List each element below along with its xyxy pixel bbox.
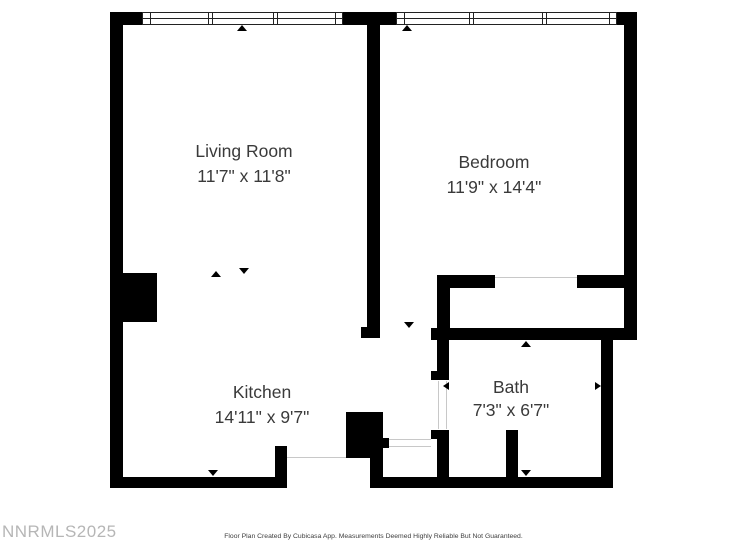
window-frame-line	[150, 13, 151, 24]
room-dimensions: 11'7" x 11'8"	[134, 164, 354, 189]
window-band-bedroom	[396, 12, 617, 25]
window-mullion	[473, 13, 474, 24]
wall-bath-bottom	[370, 477, 613, 488]
wall-divider-foot	[361, 327, 380, 338]
window-frame-line	[404, 13, 405, 24]
marker-triangle-closet-bottom	[521, 341, 531, 347]
wall-bath-left-lower-foot	[431, 430, 449, 439]
window-mullion	[212, 13, 213, 24]
wall-right-exterior	[624, 12, 637, 340]
footer-disclaimer: Floor Plan Created By Cubicasa App. Meas…	[0, 533, 747, 540]
wall-closet-bath-long	[431, 328, 637, 340]
wall-below-entry-block	[370, 458, 383, 477]
wall-kitchen-bottom	[110, 477, 287, 488]
window-glass-line	[397, 18, 616, 19]
window-frame-line	[335, 13, 336, 24]
marker-triangle-openplan-right	[239, 268, 249, 274]
marker-triangle-bath-bottom	[521, 470, 531, 476]
room-dimensions: 14'11" x 9'7"	[152, 405, 372, 430]
room-label-bedroom: Bedroom 11'9" x 14'4"	[384, 150, 604, 200]
marker-triangle-kitchen-bottom	[208, 470, 218, 476]
room-name: Bedroom	[384, 150, 604, 175]
floor-plan: Living Room 11'7" x 11'8" Bedroom 11'9" …	[0, 0, 747, 560]
wall-column-block	[121, 273, 157, 322]
window-frame-line	[609, 13, 610, 24]
room-dimensions: 7'3" x 6'7"	[421, 399, 601, 422]
window-band-living-room	[142, 12, 343, 25]
room-name: Bath	[421, 376, 601, 399]
marker-triangle-window-right	[402, 25, 412, 31]
room-label-kitchen: Kitchen 14'11" x 9'7"	[152, 380, 372, 430]
wall-kitchen-stub	[275, 446, 287, 477]
marker-triangle-bedroom-entry	[404, 322, 414, 328]
room-label-bath: Bath 7'3" x 6'7"	[421, 376, 601, 422]
marker-triangle-openplan-left	[211, 271, 221, 277]
window-mullion	[208, 13, 209, 24]
opening-line-closet	[495, 277, 577, 278]
window-mullion	[277, 13, 278, 24]
opening-line-hall-door-bot	[389, 446, 431, 447]
opening-line-entry-door	[287, 457, 346, 458]
window-glass-line	[143, 18, 342, 19]
wall-left-exterior	[110, 12, 123, 488]
room-label-living-room: Living Room 11'7" x 11'8"	[134, 139, 354, 189]
room-name: Living Room	[134, 139, 354, 164]
window-mullion	[273, 13, 274, 24]
wall-top-middle	[343, 12, 396, 25]
window-mullion	[546, 13, 547, 24]
window-mullion	[469, 13, 470, 24]
room-dimensions: 11'9" x 14'4"	[384, 175, 604, 200]
opening-line-hall-door-top	[389, 439, 431, 440]
wall-bath-right	[601, 340, 613, 488]
wall-bedroom-bottom-right	[577, 275, 624, 288]
room-name: Kitchen	[152, 380, 372, 405]
wall-bedroom-bottom-left	[437, 275, 495, 288]
wall-bath-alcove	[506, 430, 518, 477]
window-mullion	[542, 13, 543, 24]
marker-triangle-window-left	[237, 25, 247, 31]
wall-livingroom-bedroom-divider	[367, 25, 380, 328]
